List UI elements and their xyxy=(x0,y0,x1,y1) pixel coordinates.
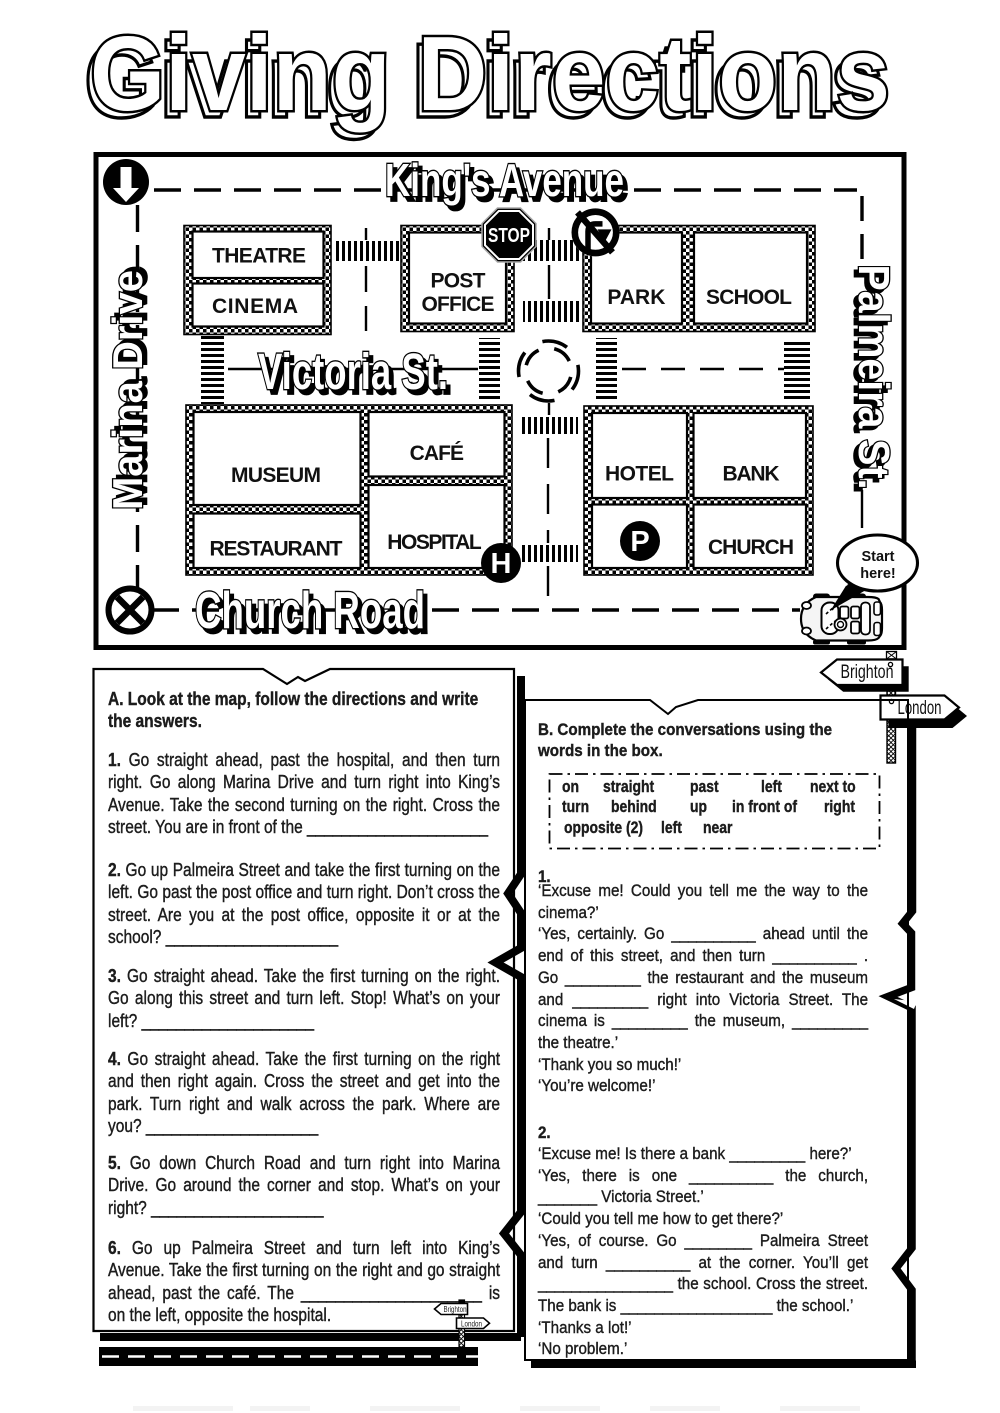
svg-text:Giving Directions: Giving Directions xyxy=(90,15,890,133)
svg-text:SCHOOL: SCHOOL xyxy=(706,286,792,309)
svg-text:MUSEUM: MUSEUM xyxy=(231,464,321,487)
svg-text:here!: here! xyxy=(860,566,895,582)
svg-text:STOP: STOP xyxy=(488,225,530,247)
svg-text:CAFÉ: CAFÉ xyxy=(410,442,464,465)
svg-text:CINEMA: CINEMA xyxy=(212,295,298,318)
svg-text:Victoria St.: Victoria St. xyxy=(258,343,448,400)
svg-text:Palmeira St.: Palmeira St. xyxy=(849,265,898,490)
svg-text:HOTEL: HOTEL xyxy=(605,462,674,485)
svg-text:Brighton: Brighton xyxy=(444,1305,467,1314)
svg-text:P: P xyxy=(630,526,649,558)
svg-text:H: H xyxy=(491,548,512,580)
svg-text:Marina Drive: Marina Drive xyxy=(104,270,151,510)
svg-text:King's Avenue: King's Avenue xyxy=(385,154,624,206)
svg-text:Brighton: Brighton xyxy=(841,662,894,683)
svg-text:POST: POST xyxy=(431,270,486,293)
svg-text:OFFICE: OFFICE xyxy=(422,293,495,316)
svg-text:London: London xyxy=(898,698,942,719)
svg-text:Start: Start xyxy=(861,549,894,565)
svg-text:HOSPITAL: HOSPITAL xyxy=(387,531,482,554)
svg-text:Church Road: Church Road xyxy=(195,582,425,640)
svg-text:RESTAURANT: RESTAURANT xyxy=(210,538,343,561)
svg-text:THEATRE: THEATRE xyxy=(212,245,306,268)
svg-text:CHURCH: CHURCH xyxy=(708,536,794,559)
svg-text:PARK: PARK xyxy=(607,286,665,309)
svg-text:BANK: BANK xyxy=(723,462,780,485)
svg-text:London: London xyxy=(461,1320,482,1329)
